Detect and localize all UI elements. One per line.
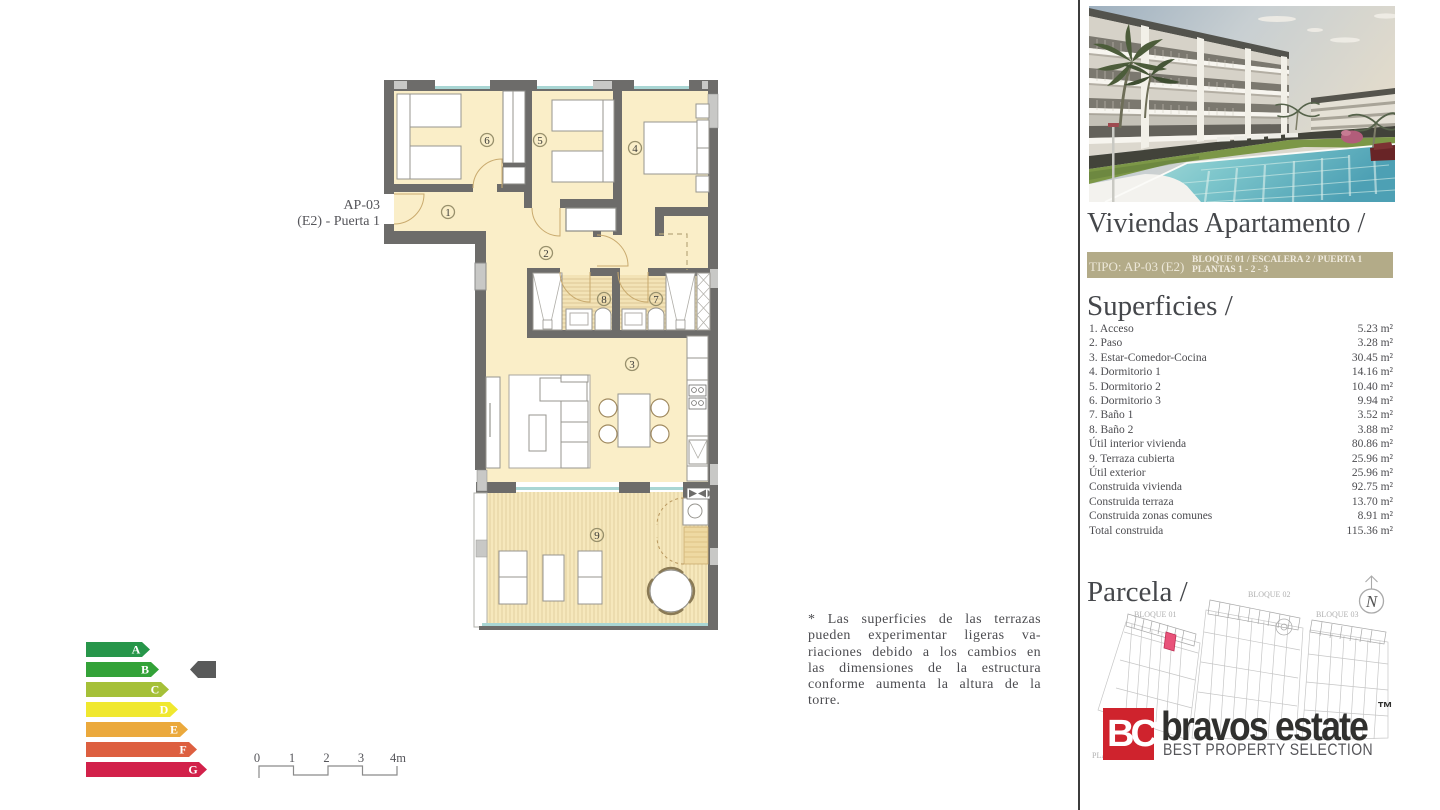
svg-text:D: D [160,703,169,717]
svg-text:C: C [151,683,160,697]
svg-text:6: 6 [484,135,490,147]
svg-text:2: 2 [543,248,549,260]
svg-text:B: B [141,663,149,677]
svg-text:3: 3 [358,751,364,765]
svg-text:A: A [132,643,141,657]
svg-text:9: 9 [594,530,600,542]
svg-text:0: 0 [254,751,260,765]
svg-text:1: 1 [445,207,451,219]
svg-text:BLOQUE 01: BLOQUE 01 [1134,610,1176,619]
svg-text:E: E [170,723,178,737]
svg-text:7: 7 [653,294,659,306]
svg-text:G: G [188,763,197,777]
svg-text:4m: 4m [390,751,406,765]
svg-text:4: 4 [632,143,638,155]
svg-text:5: 5 [537,135,543,147]
svg-text:F: F [179,743,186,757]
svg-text:2: 2 [323,751,329,765]
svg-text:3: 3 [629,359,635,371]
svg-text:BLOQUE 02: BLOQUE 02 [1248,590,1290,599]
svg-text:1: 1 [289,751,295,765]
svg-text:8: 8 [601,294,607,306]
svg-text:N: N [1365,592,1379,611]
